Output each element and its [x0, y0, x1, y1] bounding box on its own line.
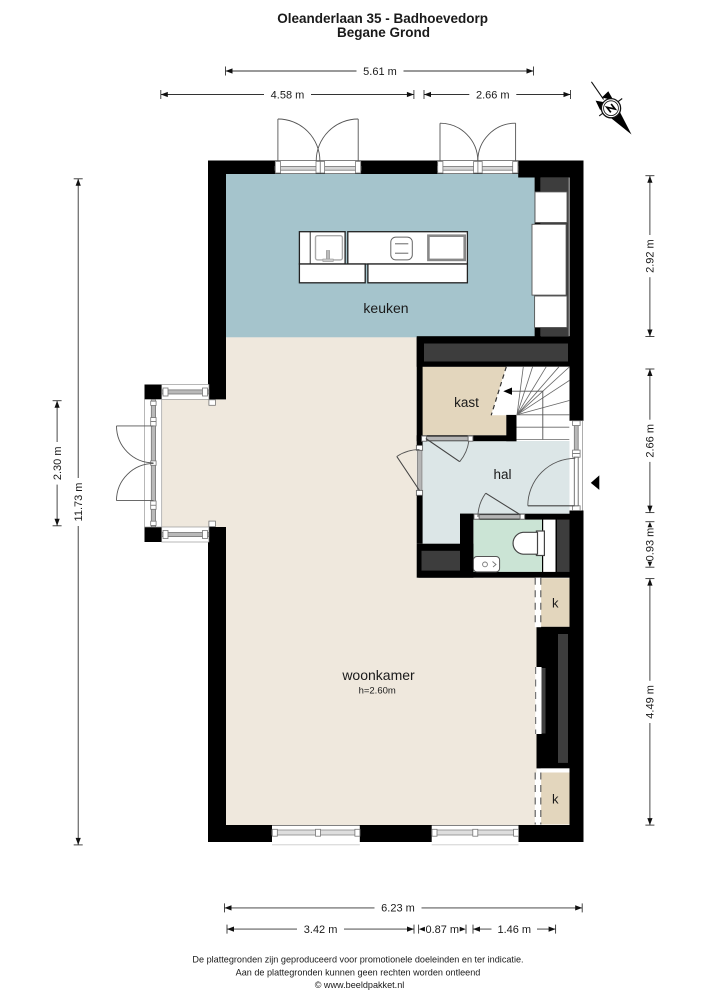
- svg-text:keuken: keuken: [363, 300, 408, 316]
- svg-text:woonkamer: woonkamer: [341, 667, 415, 683]
- svg-text:De plattegronden zijn geproduc: De plattegronden zijn geproduceerd voor …: [192, 955, 523, 965]
- svg-text:11.73 m: 11.73 m: [73, 483, 85, 522]
- svg-text:Oleanderlaan 35 - Badhoevedorp: Oleanderlaan 35 - Badhoevedorp: [277, 11, 488, 26]
- svg-text:Aan de plattegronden kunnen ge: Aan de plattegronden kunnen geen rechten…: [236, 968, 481, 978]
- svg-text:4.58 m: 4.58 m: [271, 89, 305, 101]
- svg-text:Begane Grond: Begane Grond: [337, 25, 430, 40]
- svg-text:2.66 m: 2.66 m: [476, 89, 510, 101]
- svg-text:2.92 m: 2.92 m: [645, 239, 657, 273]
- svg-text:2.30 m: 2.30 m: [52, 446, 64, 480]
- svg-text:k: k: [552, 792, 559, 807]
- svg-text:4.49 m: 4.49 m: [645, 685, 657, 719]
- svg-text:h=2.60m: h=2.60m: [359, 686, 396, 697]
- svg-text:3.42 m: 3.42 m: [304, 924, 338, 936]
- svg-text:0.93 m: 0.93 m: [645, 528, 657, 562]
- svg-text:1.46 m: 1.46 m: [497, 924, 531, 936]
- svg-text:6.23 m: 6.23 m: [381, 903, 415, 915]
- svg-text:© www.beeldpakket.nl: © www.beeldpakket.nl: [315, 980, 405, 990]
- svg-text:2.66 m: 2.66 m: [645, 424, 657, 458]
- svg-text:hal: hal: [493, 467, 511, 482]
- svg-text:5.61 m: 5.61 m: [363, 66, 397, 78]
- svg-text:k: k: [552, 596, 559, 611]
- svg-text:0.87 m: 0.87 m: [425, 924, 459, 936]
- svg-text:kast: kast: [454, 395, 479, 410]
